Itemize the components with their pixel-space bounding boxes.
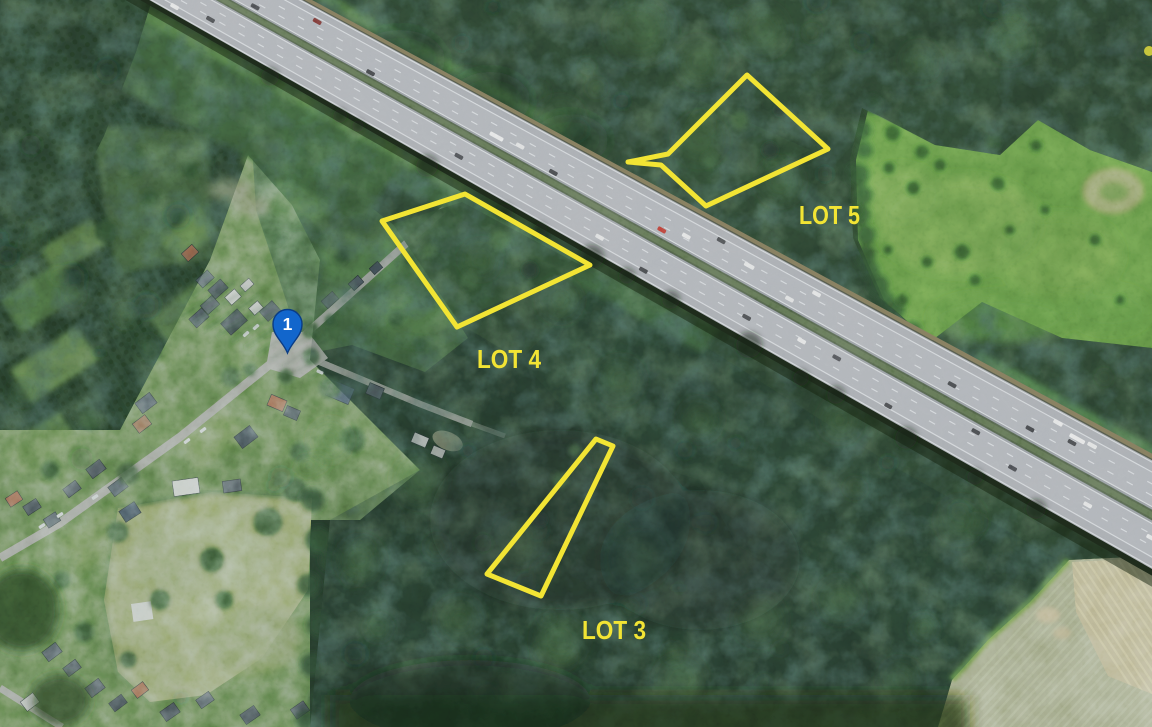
svg-text:LOT 5: LOT 5	[799, 200, 860, 230]
svg-text:LOT 4: LOT 4	[477, 344, 541, 374]
svg-text:LOT 3: LOT 3	[582, 615, 646, 645]
svg-text:1: 1	[283, 314, 293, 334]
